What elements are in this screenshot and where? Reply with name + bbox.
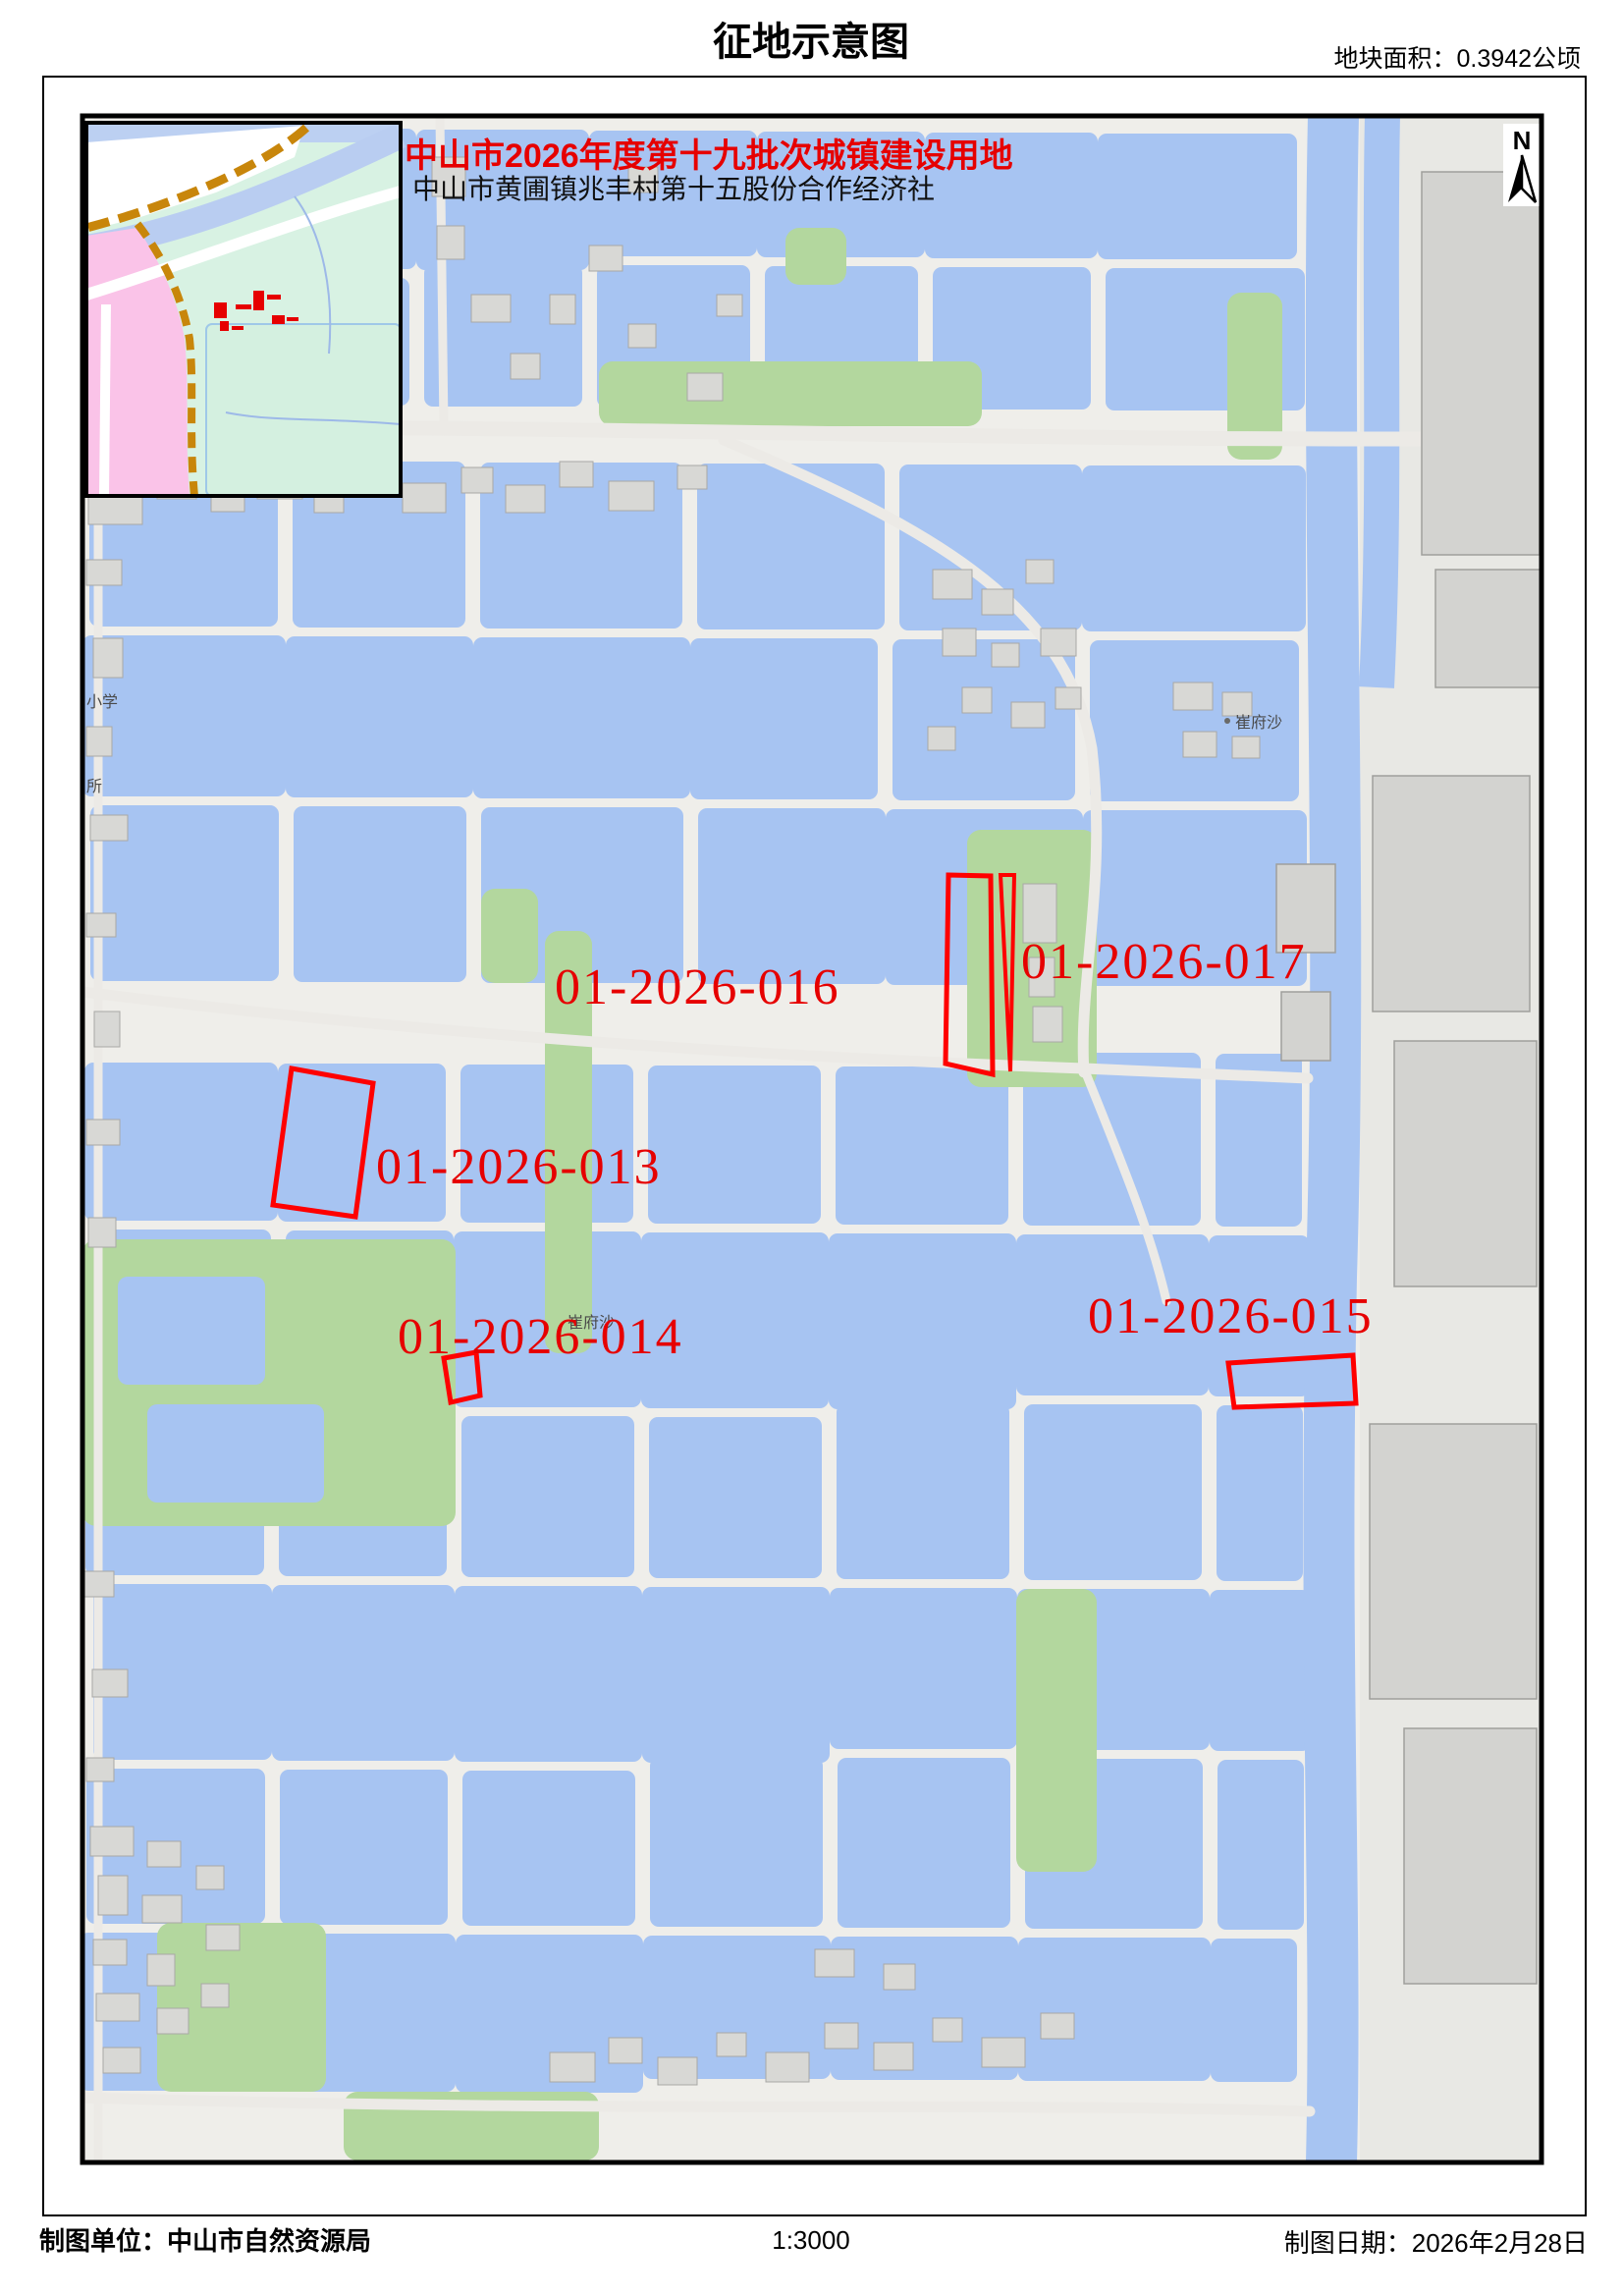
- place-label: 所: [86, 778, 102, 795]
- north-label: N: [1513, 126, 1532, 155]
- footer-scale: 1:3000: [772, 2225, 850, 2256]
- footer-agency: 制图单位：中山市自然资源局: [39, 2221, 371, 2258]
- parcel-label-015: 01-2026-015: [1088, 1288, 1374, 1344]
- place-label: 小学: [86, 693, 118, 711]
- place-label: 崔府沙: [1235, 714, 1282, 732]
- parcel-label-014: 01-2026-014: [398, 1309, 683, 1365]
- north-arrow-icon: N: [1503, 124, 1541, 206]
- coop-subtitle: 中山市黄圃镇兆丰村第十五股份合作经济社: [412, 174, 935, 204]
- poi-marker-icon: [1224, 718, 1230, 724]
- land-acquisition-map-page: 征地示意图 地块面积：0.3942公顷 诊室: [0, 0, 1623, 2296]
- batch-title: 中山市2026年度第十九批次城镇建设用地: [405, 137, 1013, 175]
- parcel-label-016: 01-2026-016: [555, 959, 840, 1015]
- parcel-label-013: 01-2026-013: [376, 1139, 662, 1195]
- map-canvas: 诊室 大滘百货 小学 所 崔府沙 崔府沙 01-2026-013 01-2: [0, 0, 1623, 2296]
- inset-overview-map: [86, 123, 401, 496]
- footer-date: 制图日期：2026年2月28日: [1284, 2223, 1588, 2260]
- parcel-label-017: 01-2026-017: [1021, 934, 1307, 990]
